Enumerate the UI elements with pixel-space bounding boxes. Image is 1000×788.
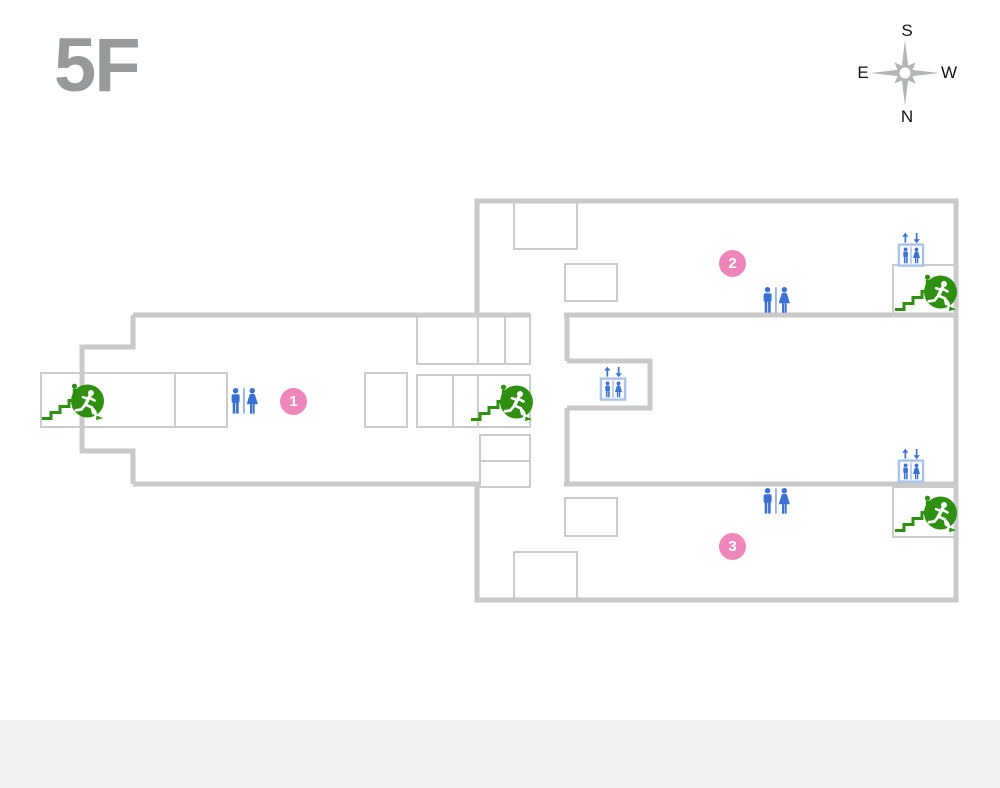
elevator-icon <box>899 449 923 482</box>
toilet-icon <box>764 287 790 313</box>
zone-marker-1[interactable]: 1 <box>280 388 307 415</box>
toilet-icon <box>764 488 790 514</box>
zone-marker-2[interactable]: 2 <box>719 250 746 277</box>
emergency-stairs-icon <box>895 275 957 311</box>
legend-bar: 화장실 엘리베이터 비상계단 <box>0 720 1000 788</box>
floor-map-page: 5F <box>0 0 1000 788</box>
emergency-stairs-icon <box>895 496 957 532</box>
emergency-stairs-icon <box>471 385 533 421</box>
floor-plan <box>0 0 1000 788</box>
zone-marker-3[interactable]: 3 <box>719 533 746 560</box>
toilet-icon <box>232 388 258 414</box>
elevator-icon <box>601 367 625 400</box>
emergency-stairs-icon <box>42 384 104 420</box>
elevator-icon <box>899 233 923 266</box>
